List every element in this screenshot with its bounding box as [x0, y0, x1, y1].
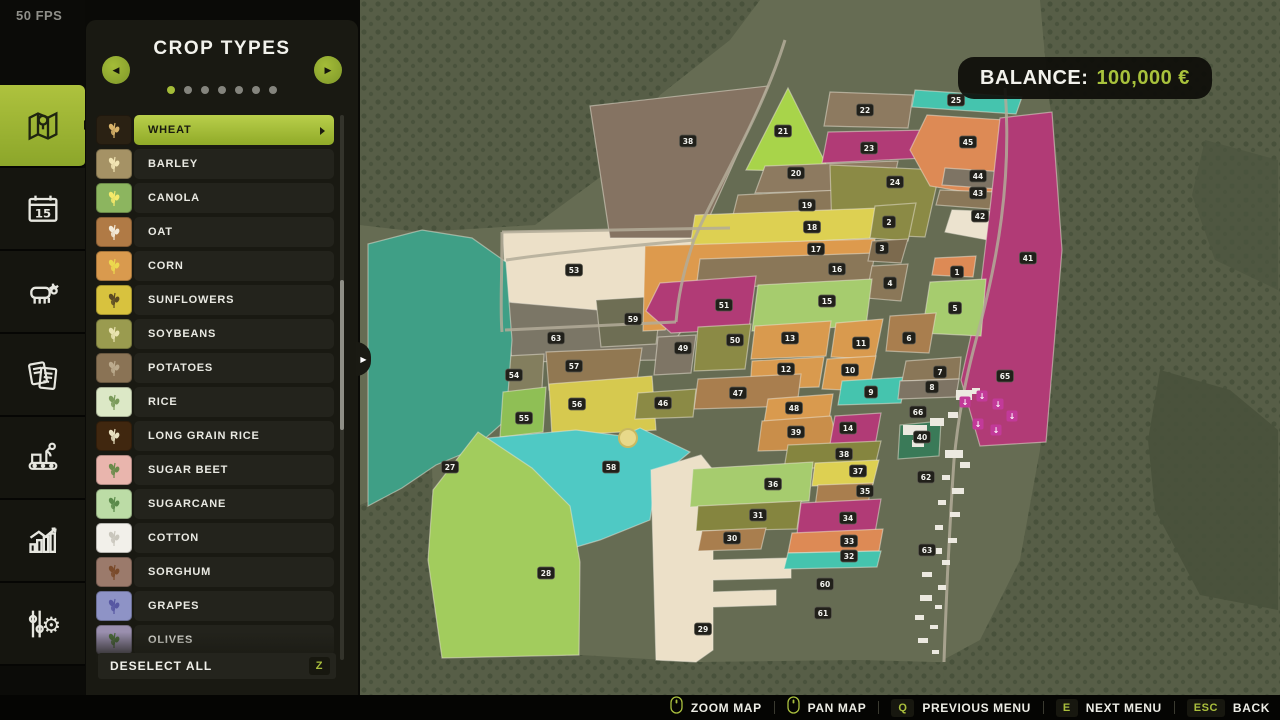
field-badge-7: 7	[934, 366, 947, 378]
svg-text:27: 27	[445, 463, 455, 472]
field-badge-50: 50	[727, 334, 744, 346]
scrollbar[interactable]	[340, 115, 344, 660]
crop-label-wrap: SUGARCANE	[134, 489, 334, 519]
svg-text:47: 47	[733, 389, 743, 398]
crop-label-wrap: SORGHUM	[134, 557, 334, 587]
crop-row-cotton[interactable]: COTTON	[96, 523, 334, 553]
sellpoint-marker-icon[interactable]: ↓	[977, 391, 988, 402]
panel-title: CROP TYPES	[86, 38, 358, 60]
road	[501, 232, 502, 332]
svg-text:14: 14	[843, 424, 853, 433]
field-badge-57: 57	[566, 360, 583, 372]
crop-icon	[96, 387, 132, 417]
svg-text:46: 46	[658, 399, 668, 408]
crop-label: POTATOES	[148, 362, 213, 374]
field-badge-44: 44	[970, 170, 987, 182]
hotbar-label: PAN MAP	[808, 701, 867, 715]
field-badge-40: 40	[914, 431, 931, 443]
svg-text:45: 45	[963, 138, 973, 147]
field-badge-1: 1	[951, 266, 964, 278]
svg-text:↓: ↓	[975, 420, 982, 429]
production-icon	[23, 438, 63, 478]
building	[922, 572, 932, 577]
crop-icon	[96, 285, 132, 315]
building	[930, 625, 938, 629]
field-33[interactable]	[788, 529, 883, 553]
crop-label: SOYBEANS	[148, 328, 216, 340]
svg-text:21: 21	[778, 127, 788, 136]
hotbar-label: BACK	[1233, 701, 1270, 715]
field-badge-65: 65	[997, 370, 1014, 382]
field-badge-14: 14	[840, 422, 857, 434]
crop-label: CORN	[148, 260, 184, 272]
crop-label: SUGARCANE	[148, 498, 226, 510]
sidebar-tab-animals[interactable]	[0, 251, 85, 334]
svg-text:4: 4	[887, 279, 892, 288]
svg-text:60: 60	[820, 580, 830, 589]
svg-text:36: 36	[768, 480, 778, 489]
sidebar-tab-map[interactable]	[0, 85, 85, 168]
crop-label: COTTON	[148, 532, 199, 544]
hotbar-separator	[1043, 701, 1044, 714]
svg-text:5: 5	[952, 304, 957, 313]
field-badge-2: 2	[883, 216, 896, 228]
field-badge-46: 46	[655, 397, 672, 409]
building	[948, 412, 958, 418]
svg-text:⚙: ⚙	[41, 613, 60, 638]
svg-text:1: 1	[954, 268, 959, 277]
map-svg: ↓↓↓↓↓↓5363575459275556582829382122232019…	[360, 0, 1280, 695]
crop-row-sunflowers[interactable]: SUNFLOWERS	[96, 285, 334, 315]
crop-row-grapes[interactable]: GRAPES	[96, 591, 334, 621]
field-badge-8: 8	[926, 381, 939, 393]
field-badge-62: 62	[918, 471, 935, 483]
sellpoint-marker-icon[interactable]: ↓	[960, 397, 971, 408]
building	[918, 638, 928, 643]
hotbar-next-menu[interactable]: ENEXT MENU	[1056, 699, 1162, 717]
key-badge-q: Q	[891, 699, 914, 717]
svg-text:37: 37	[853, 467, 863, 476]
svg-text:59: 59	[628, 315, 638, 324]
crop-row-oat[interactable]: OAT	[96, 217, 334, 247]
field-49[interactable]	[654, 335, 696, 375]
page-dot-6	[252, 86, 260, 94]
svg-text:9: 9	[868, 388, 873, 397]
svg-text:56: 56	[572, 400, 582, 409]
building	[932, 650, 939, 654]
hotbar-separator	[878, 701, 879, 714]
field-badge-66: 66	[910, 406, 927, 418]
crop-icon	[96, 523, 132, 553]
field-badge-12: 12	[778, 363, 795, 375]
crop-label: SUGAR BEET	[148, 464, 228, 476]
building	[950, 512, 960, 517]
crop-list: WHEATBARLEYCANOLAOATCORNSUNFLOWERSSOYBEA…	[96, 115, 334, 660]
crop-label-wrap: WHEAT	[134, 115, 334, 145]
svg-text:↓: ↓	[1009, 412, 1016, 421]
key-badge-esc: ESC	[1187, 699, 1225, 717]
svg-text:7: 7	[937, 368, 942, 377]
svg-text:13: 13	[785, 334, 795, 343]
expand-arrow-icon: ▶	[360, 355, 366, 364]
svg-text:43: 43	[973, 189, 983, 198]
svg-text:53: 53	[569, 266, 579, 275]
sidebar-tab-contracts[interactable]	[0, 334, 85, 417]
field-badge-63: 63	[919, 544, 936, 556]
sellpoint-marker-icon[interactable]: ↓	[991, 425, 1002, 436]
field-50[interactable]	[694, 324, 751, 371]
svg-text:44: 44	[973, 172, 983, 181]
svg-text:24: 24	[890, 178, 900, 187]
svg-text:↓: ↓	[995, 400, 1002, 409]
field-badge-60: 60	[817, 578, 834, 590]
crop-types-panel: ◀ CROP TYPES ▶ WHEATBARLEYCANOLAOATCORNS…	[86, 20, 358, 695]
field-badge-32: 32	[841, 550, 858, 562]
contracts-icon	[23, 355, 63, 395]
building	[920, 595, 932, 601]
crop-label: SORGHUM	[148, 566, 211, 578]
crop-label-wrap: BARLEY	[134, 149, 334, 179]
field-43[interactable]	[936, 190, 998, 209]
field-badge-24: 24	[887, 176, 904, 188]
field-badge-58: 58	[603, 461, 620, 473]
svg-text:11: 11	[856, 339, 866, 348]
mouse-icon	[670, 696, 683, 719]
page-dot-3	[201, 86, 209, 94]
deselect-all-label: DESELECT ALL	[98, 659, 309, 673]
settings-icon: ⚙	[23, 604, 63, 644]
statistics-icon	[23, 521, 63, 561]
field-badge-43: 43	[970, 187, 987, 199]
crop-row-sorghum[interactable]: SORGHUM	[96, 557, 334, 587]
svg-text:50: 50	[730, 336, 740, 345]
svg-text:41: 41	[1023, 254, 1033, 263]
building	[935, 605, 942, 609]
svg-text:42: 42	[975, 212, 985, 221]
field-badge-54: 54	[506, 369, 523, 381]
field-badge-28: 28	[538, 567, 555, 579]
field-34[interactable]	[797, 499, 881, 534]
crop-icon	[96, 183, 132, 213]
field-badge-42: 42	[972, 210, 989, 222]
field-badge-27: 27	[442, 461, 459, 473]
field-badge-17: 17	[808, 243, 825, 255]
svg-text:49: 49	[678, 344, 688, 353]
field-badge-18: 18	[804, 221, 821, 233]
balance-display: BALANCE: 100,000 €	[958, 57, 1212, 99]
hotbar-separator	[774, 701, 775, 714]
hotbar-label: PREVIOUS MENU	[922, 701, 1030, 715]
building	[945, 450, 963, 458]
field-badge-5: 5	[949, 302, 962, 314]
crop-label: RICE	[148, 396, 177, 408]
crop-icon	[96, 353, 132, 383]
field-badge-49: 49	[675, 342, 692, 354]
field-badge-20: 20	[788, 167, 805, 179]
crop-label-wrap: LONG GRAIN RICE	[134, 421, 334, 451]
field-badge-47: 47	[730, 387, 747, 399]
sellpoint-marker-icon[interactable]: ↓	[1007, 411, 1018, 422]
crop-row-sugarcane[interactable]: SUGARCANE	[96, 489, 334, 519]
fps-counter: 50 FPS	[16, 8, 62, 23]
svg-text:2: 2	[886, 218, 891, 227]
animals-icon	[23, 272, 63, 312]
building	[942, 560, 950, 565]
svg-text:8: 8	[929, 383, 934, 392]
svg-text:62: 62	[921, 473, 931, 482]
crop-icon	[96, 421, 132, 451]
svg-text:38: 38	[683, 137, 693, 146]
poi-marker-icon[interactable]	[619, 429, 637, 447]
building	[942, 475, 950, 480]
crop-row-corn[interactable]: CORN	[96, 251, 334, 281]
crop-label-wrap: SUGAR BEET	[134, 455, 334, 485]
crop-label-wrap: CORN	[134, 251, 334, 281]
crop-label-wrap: CANOLA	[134, 183, 334, 213]
crop-row-rice[interactable]: RICE	[96, 387, 334, 417]
field-31[interactable]	[696, 501, 801, 531]
building	[948, 538, 957, 543]
svg-text:63: 63	[551, 334, 561, 343]
field-badge-19: 19	[799, 199, 816, 211]
svg-text:35: 35	[860, 487, 870, 496]
crop-row-canola[interactable]: CANOLA	[96, 183, 334, 213]
svg-text:38: 38	[839, 450, 849, 459]
svg-text:65: 65	[1000, 372, 1010, 381]
hotbar-label: ZOOM MAP	[691, 701, 762, 715]
crop-label-wrap: GRAPES	[134, 591, 334, 621]
crop-label-wrap: COTTON	[134, 523, 334, 553]
crop-icon	[96, 251, 132, 281]
building	[952, 488, 964, 494]
building	[935, 525, 943, 530]
crop-icon	[96, 557, 132, 587]
svg-text:↓: ↓	[993, 426, 1000, 435]
crop-label-wrap: SUNFLOWERS	[134, 285, 334, 315]
calendar-icon: 15	[23, 189, 63, 229]
field-badge-10: 10	[842, 364, 859, 376]
building	[938, 585, 946, 590]
building	[915, 615, 924, 620]
field-badge-34: 34	[840, 512, 857, 524]
crop-label-wrap: SOYBEANS	[134, 319, 334, 349]
field-badge-21: 21	[775, 125, 792, 137]
field-badge-29: 29	[695, 623, 712, 635]
field-badge-23: 23	[861, 142, 878, 154]
svg-text:58: 58	[606, 463, 616, 472]
panel-header: ◀ CROP TYPES ▶	[86, 20, 358, 86]
page-dots	[86, 86, 358, 94]
mouse-icon	[787, 696, 800, 719]
deselect-key-badge: Z	[309, 657, 330, 675]
crop-label: LONG GRAIN RICE	[148, 430, 260, 442]
crop-row-barley[interactable]: BARLEY	[96, 149, 334, 179]
svg-text:57: 57	[569, 362, 579, 371]
field-badge-11: 11	[853, 337, 870, 349]
crop-label: OAT	[148, 226, 173, 238]
page-dot-1	[167, 86, 175, 94]
crop-row-wheat[interactable]: WHEAT	[96, 115, 334, 145]
svg-text:39: 39	[791, 428, 801, 437]
crop-label: GRAPES	[148, 600, 199, 612]
field-badge-33: 33	[841, 535, 858, 547]
deselect-all-button[interactable]: DESELECT ALL Z	[98, 653, 336, 679]
field-badge-16: 16	[829, 263, 846, 275]
hotbar-previous-menu[interactable]: QPREVIOUS MENU	[891, 699, 1031, 717]
hotbar-separator	[1174, 701, 1175, 714]
sellpoint-marker-icon[interactable]: ↓	[993, 399, 1004, 410]
page-dot-2	[184, 86, 192, 94]
page-dot-7	[269, 86, 277, 94]
crop-icon	[96, 217, 132, 247]
svg-text:29: 29	[698, 625, 708, 634]
crop-label: WHEAT	[148, 124, 192, 136]
sidebar: 15⚙	[0, 0, 85, 720]
field-badge-9: 9	[865, 386, 878, 398]
field-badge-6: 6	[903, 332, 916, 344]
building	[930, 418, 944, 426]
map-canvas[interactable]: ↓↓↓↓↓↓5363575459275556582829382122232019…	[360, 0, 1280, 695]
crop-label-wrap: POTATOES	[134, 353, 334, 383]
page-dot-5	[235, 86, 243, 94]
sidebar-tab-settings[interactable]: ⚙	[0, 583, 85, 666]
field-badge-30: 30	[724, 532, 741, 544]
svg-text:16: 16	[832, 265, 842, 274]
crop-row-soybeans[interactable]: SOYBEANS	[96, 319, 334, 349]
next-page-arrow-icon[interactable]: ▶	[314, 56, 342, 84]
crop-row-potatoes[interactable]: POTATOES	[96, 353, 334, 383]
svg-text:17: 17	[811, 245, 821, 254]
svg-text:25: 25	[951, 96, 961, 105]
field-36[interactable]	[690, 462, 813, 507]
map-icon	[23, 106, 63, 146]
field-badge-38: 38	[836, 448, 853, 460]
field-badge-45: 45	[960, 136, 977, 148]
svg-text:23: 23	[864, 144, 874, 153]
svg-text:10: 10	[845, 366, 855, 375]
crop-icon	[96, 591, 132, 621]
scrollbar-thumb[interactable]	[340, 280, 344, 430]
sellpoint-marker-icon[interactable]: ↓	[973, 419, 984, 430]
svg-text:31: 31	[753, 511, 763, 520]
field-badge-35: 35	[857, 485, 874, 497]
field-badge-25: 25	[948, 94, 965, 106]
field-badge-38: 38	[680, 135, 697, 147]
svg-text:15: 15	[822, 297, 832, 306]
crop-label-wrap: RICE	[134, 387, 334, 417]
crop-label: SUNFLOWERS	[148, 294, 234, 306]
svg-text:18: 18	[807, 223, 817, 232]
svg-text:22: 22	[860, 106, 870, 115]
field-badge-61: 61	[815, 607, 832, 619]
field-37[interactable]	[812, 460, 879, 486]
svg-text:↓: ↓	[979, 392, 986, 401]
field-badge-59: 59	[625, 313, 642, 325]
hotkey-bar: ZOOM MAPPAN MAPQPREVIOUS MENUENEXT MENUE…	[0, 695, 1280, 720]
field-badge-56: 56	[569, 398, 586, 410]
key-badge-e: E	[1056, 699, 1078, 717]
crop-label: BARLEY	[148, 158, 198, 170]
sidebar-tab-production[interactable]	[0, 417, 85, 500]
svg-text:30: 30	[727, 534, 737, 543]
svg-text:32: 32	[844, 552, 854, 561]
field-7[interactable]	[902, 357, 961, 381]
field-badge-48: 48	[786, 402, 803, 414]
field-badge-36: 36	[765, 478, 782, 490]
hotbar-pan-map[interactable]: PAN MAP	[787, 696, 867, 719]
crop-icon	[96, 115, 132, 145]
field-badge-63: 63	[548, 332, 565, 344]
field-badge-22: 22	[857, 104, 874, 116]
svg-text:34: 34	[843, 514, 853, 523]
crop-row-long-grain-rice[interactable]: LONG GRAIN RICE	[96, 421, 334, 451]
crop-icon	[96, 489, 132, 519]
svg-text:28: 28	[541, 569, 551, 578]
field-badge-15: 15	[819, 295, 836, 307]
building	[960, 462, 970, 468]
svg-text:55: 55	[519, 414, 529, 423]
svg-text:12: 12	[781, 365, 791, 374]
field-badge-13: 13	[782, 332, 799, 344]
sidebar-tab-statistics[interactable]	[0, 500, 85, 583]
svg-text:↓: ↓	[962, 398, 969, 407]
svg-text:20: 20	[791, 169, 801, 178]
svg-text:15: 15	[34, 206, 50, 220]
svg-text:6: 6	[906, 334, 911, 343]
field-badge-37: 37	[850, 465, 867, 477]
prev-page-arrow-icon[interactable]: ◀	[102, 56, 130, 84]
crop-icon	[96, 319, 132, 349]
crop-label-wrap: OAT	[134, 217, 334, 247]
field-badge-55: 55	[516, 412, 533, 424]
field-badge-51: 51	[716, 299, 733, 311]
crop-row-sugar-beet[interactable]: SUGAR BEET	[96, 455, 334, 485]
balance-label: BALANCE:	[980, 67, 1088, 90]
field-badge-39: 39	[788, 426, 805, 438]
game-screen: 15⚙ 50 FPS ↓↓↓↓↓↓53635754592755565828293…	[0, 0, 1280, 720]
field-32[interactable]	[784, 551, 881, 569]
field-badge-4: 4	[884, 277, 897, 289]
svg-text:19: 19	[802, 201, 812, 210]
svg-text:54: 54	[509, 371, 519, 380]
hotbar-zoom-map[interactable]: ZOOM MAP	[670, 696, 762, 719]
sidebar-tab-calendar[interactable]: 15	[0, 168, 85, 251]
crop-label: CANOLA	[148, 192, 200, 204]
svg-text:66: 66	[913, 408, 923, 417]
crop-icon	[96, 455, 132, 485]
svg-text:40: 40	[917, 433, 927, 442]
field-badge-3: 3	[876, 242, 889, 254]
field-badge-53: 53	[566, 264, 583, 276]
svg-text:61: 61	[818, 609, 828, 618]
svg-text:48: 48	[789, 404, 799, 413]
crop-icon	[96, 149, 132, 179]
field-badge-31: 31	[750, 509, 767, 521]
svg-text:3: 3	[879, 244, 884, 253]
balance-amount: 100,000 €	[1096, 67, 1189, 90]
svg-text:51: 51	[719, 301, 729, 310]
svg-text:63: 63	[922, 546, 932, 555]
hotbar-label: NEXT MENU	[1086, 701, 1162, 715]
field-badge-41: 41	[1020, 252, 1037, 264]
page-dot-4	[218, 86, 226, 94]
building	[938, 500, 946, 505]
hotbar-back[interactable]: ESCBACK	[1187, 699, 1270, 717]
svg-text:33: 33	[844, 537, 854, 546]
